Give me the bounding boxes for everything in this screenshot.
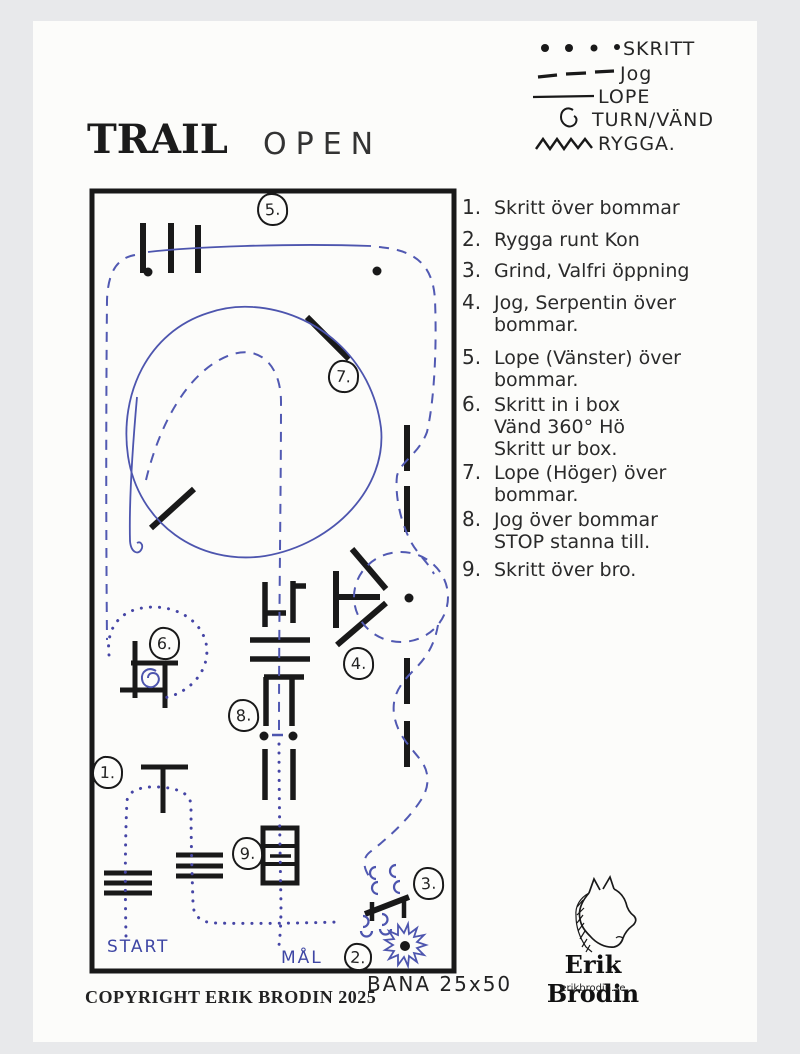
list-item-5: 5.Lope (Vänster) över bommar. — [462, 346, 681, 391]
list-item-9: 9.Skritt över bro. — [462, 558, 636, 581]
list-item-1: 1.Skritt över bommar — [462, 196, 680, 219]
logo-website: erikbrodin.se — [528, 983, 658, 994]
list-item-8: 8.Jog över bommar STOP stanna till. — [462, 508, 658, 553]
skritt-dotted-symbol — [541, 44, 620, 52]
turn-spiral-in-box — [142, 669, 159, 687]
lope-path-solid — [126, 245, 381, 557]
arena-border — [92, 191, 454, 971]
scanned-trail-course-sheet: TRAIL OPEN SKRITT Jog LOPE TURN/VÄND RYG… — [0, 0, 800, 1054]
jog-dashed-symbol — [538, 71, 614, 77]
obstacle-2-cone — [400, 941, 410, 951]
list-item-4: 4.Jog, Serpentin över bommar. — [462, 291, 676, 336]
list-item-6: 6.Skritt in i box Vänd 360° Hö Skritt ur… — [462, 393, 625, 460]
obstacle-1-poles — [104, 767, 223, 893]
page-title: TRAIL — [87, 116, 228, 163]
horse-head-logo — [576, 877, 636, 952]
arena-size-note: BANA 25x50 — [367, 972, 512, 996]
legend-label-skritt: SKRITT — [623, 38, 695, 60]
legend-label-jog: Jog — [620, 63, 652, 85]
legend-label-turn: TURN/VÄND — [592, 109, 714, 131]
lope-solid-symbol — [533, 96, 594, 97]
obstacle-number-6: 6. — [148, 626, 181, 661]
obstacle-number-2: 2. — [343, 942, 372, 971]
obstacle-7-poles — [151, 317, 349, 528]
obstacle-number-4: 4. — [342, 646, 374, 680]
goal-label: MÅL — [281, 948, 323, 968]
cone-dots — [144, 267, 382, 277]
jog-path-dashed — [106, 247, 448, 879]
turn-spiral-icon — [561, 108, 576, 126]
list-item-3: 3.Grind, Valfri öppning — [462, 259, 689, 282]
obstacle-4-serpentine-poles — [336, 425, 414, 767]
rygga-zigzag-icon — [536, 139, 592, 149]
obstacle-number-3: 3. — [412, 866, 445, 901]
copyright-text: COPYRIGHT ERIK BRODIN 2025 — [85, 987, 376, 1008]
list-item-2: 2.Rygga runt Kon — [462, 228, 640, 251]
legend-label-lope: LOPE — [598, 86, 650, 108]
legend-label-rygga: RYGGA. — [598, 133, 676, 155]
list-item-7: 7.Lope (Höger) över bommar. — [462, 461, 666, 506]
obstacle-number-9: 9. — [231, 836, 263, 870]
obstacle-number-1: 1. — [91, 755, 123, 789]
start-label: START — [107, 937, 169, 957]
obstacle-number-5: 5. — [256, 192, 289, 227]
class-title: OPEN — [263, 127, 382, 162]
logo-name: Erik Brodin — [528, 950, 658, 1008]
